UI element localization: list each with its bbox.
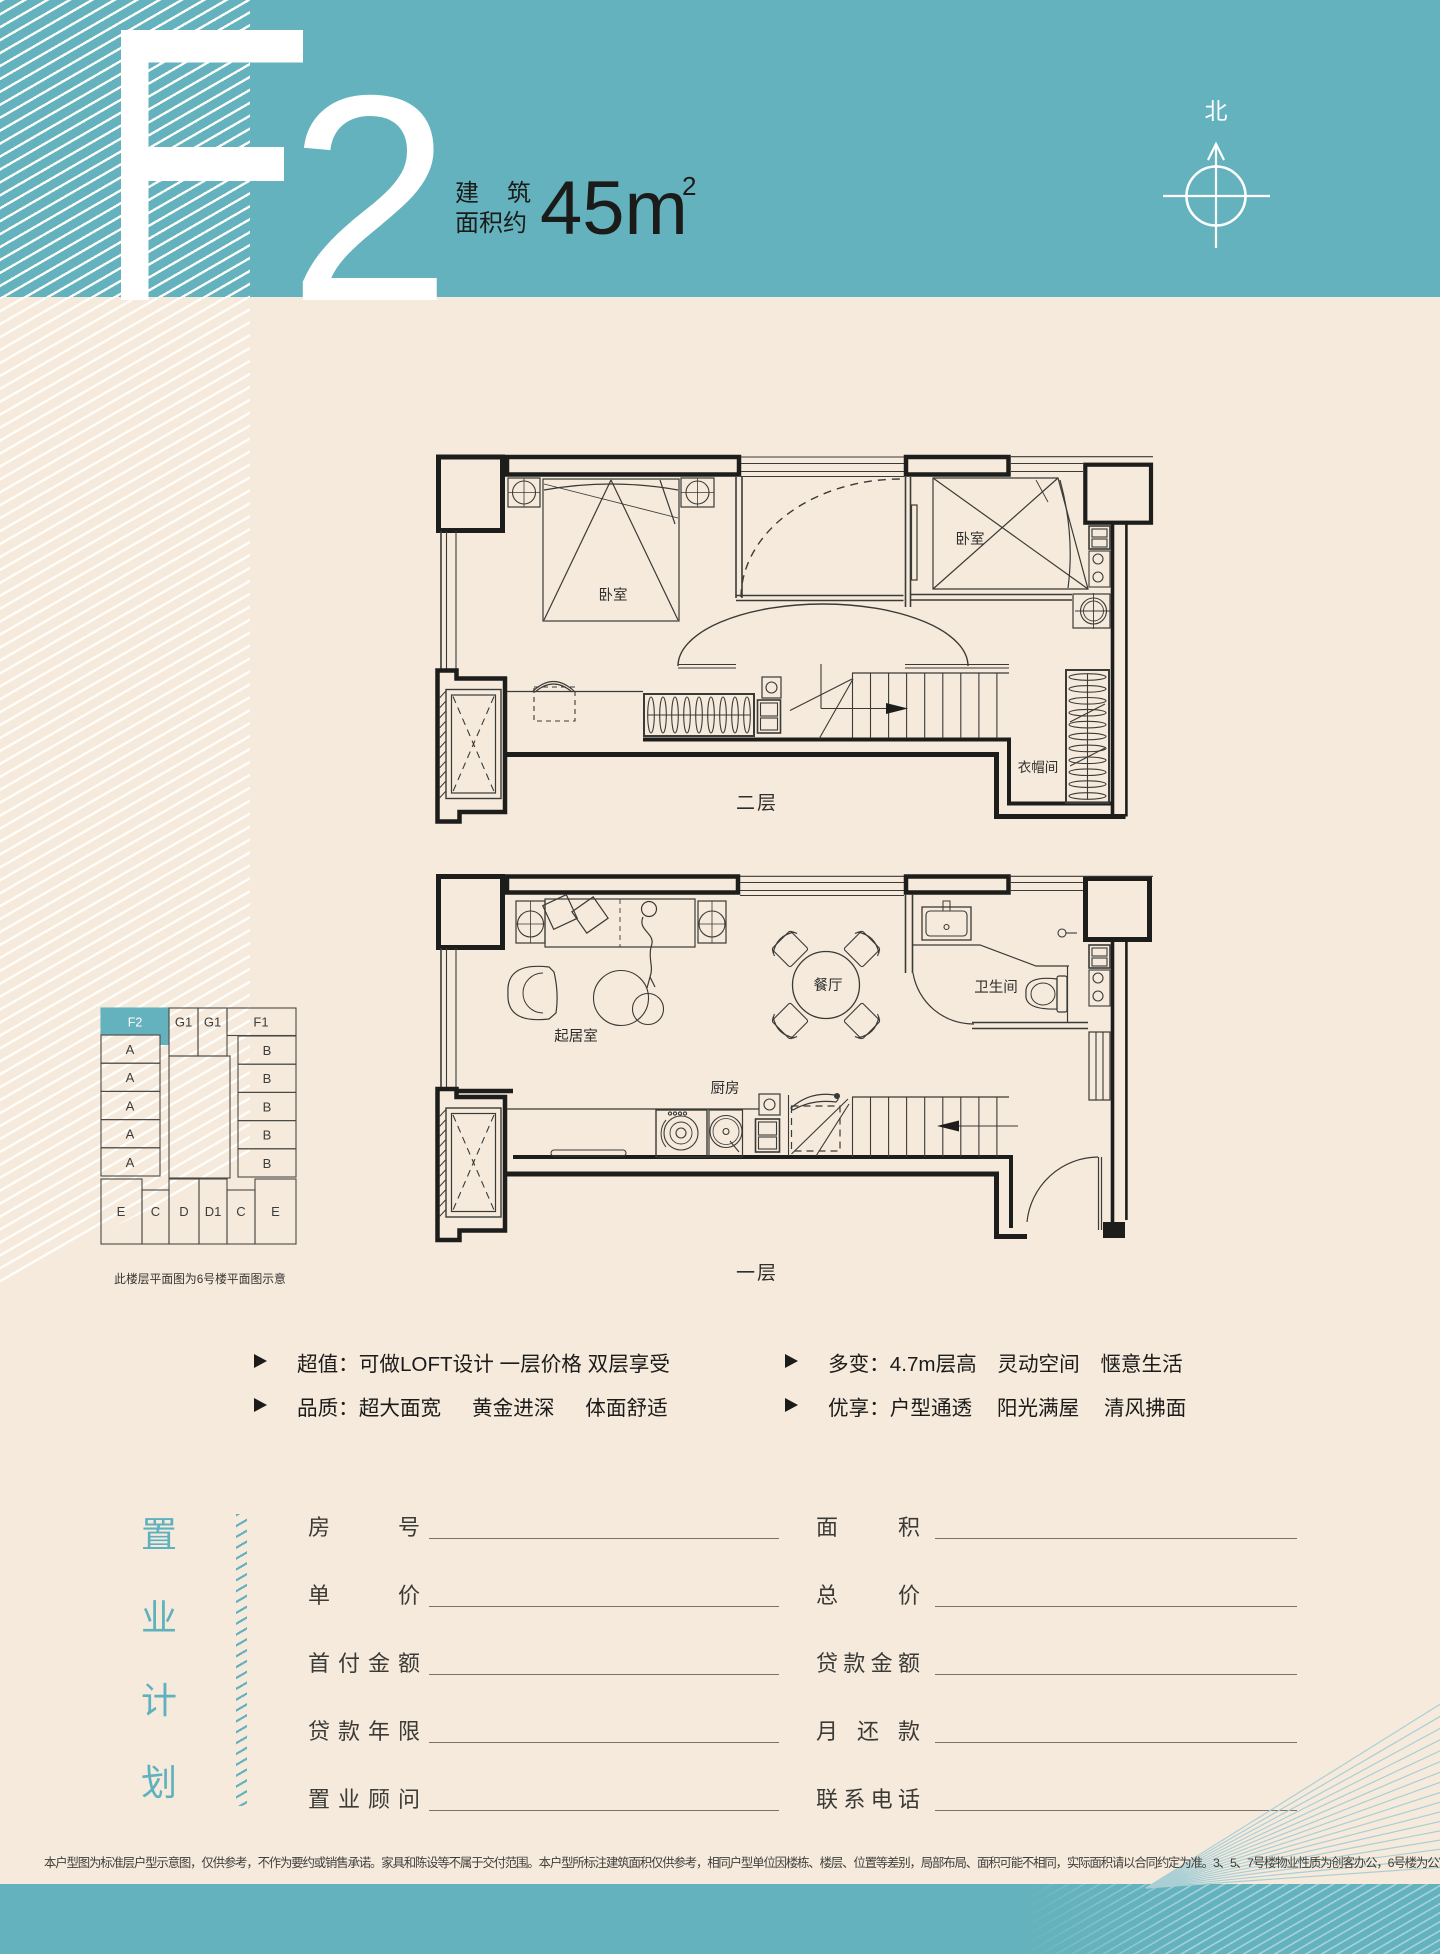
svg-text:餐厅: 餐厅 bbox=[814, 977, 843, 994]
svg-text:起居室: 起居室 bbox=[554, 1028, 598, 1045]
svg-text:B: B bbox=[263, 1156, 272, 1171]
svg-text:厨房: 厨房 bbox=[711, 1080, 740, 1097]
svg-text:北: 北 bbox=[1205, 98, 1228, 124]
svg-text:E: E bbox=[117, 1204, 126, 1219]
svg-text:D: D bbox=[179, 1204, 188, 1219]
svg-text:G1: G1 bbox=[204, 1015, 221, 1030]
svg-text:C: C bbox=[151, 1204, 160, 1219]
svg-text:一层: 一层 bbox=[736, 1263, 778, 1284]
svg-text:卫生间: 卫生间 bbox=[974, 979, 1018, 996]
svg-text:B: B bbox=[263, 1128, 272, 1143]
svg-text:A: A bbox=[126, 1127, 135, 1142]
svg-text:D1: D1 bbox=[205, 1204, 222, 1219]
svg-text:F2: F2 bbox=[128, 1016, 143, 1030]
svg-text:二层: 二层 bbox=[736, 793, 778, 814]
svg-text:F1: F1 bbox=[253, 1015, 268, 1030]
svg-text:E: E bbox=[271, 1204, 280, 1219]
svg-text:B: B bbox=[263, 1099, 272, 1114]
svg-text:B: B bbox=[263, 1043, 272, 1058]
svg-text:A: A bbox=[126, 1155, 135, 1170]
svg-text:C: C bbox=[236, 1204, 245, 1219]
svg-text:衣帽间: 衣帽间 bbox=[1018, 760, 1059, 775]
svg-text:A: A bbox=[126, 1042, 135, 1057]
svg-text:卧室: 卧室 bbox=[599, 587, 628, 604]
svg-text:G1: G1 bbox=[175, 1015, 192, 1030]
svg-text:A: A bbox=[126, 1098, 135, 1113]
svg-text:A: A bbox=[126, 1070, 135, 1085]
svg-text:卧室: 卧室 bbox=[956, 531, 985, 548]
svg-text:B: B bbox=[263, 1071, 272, 1086]
